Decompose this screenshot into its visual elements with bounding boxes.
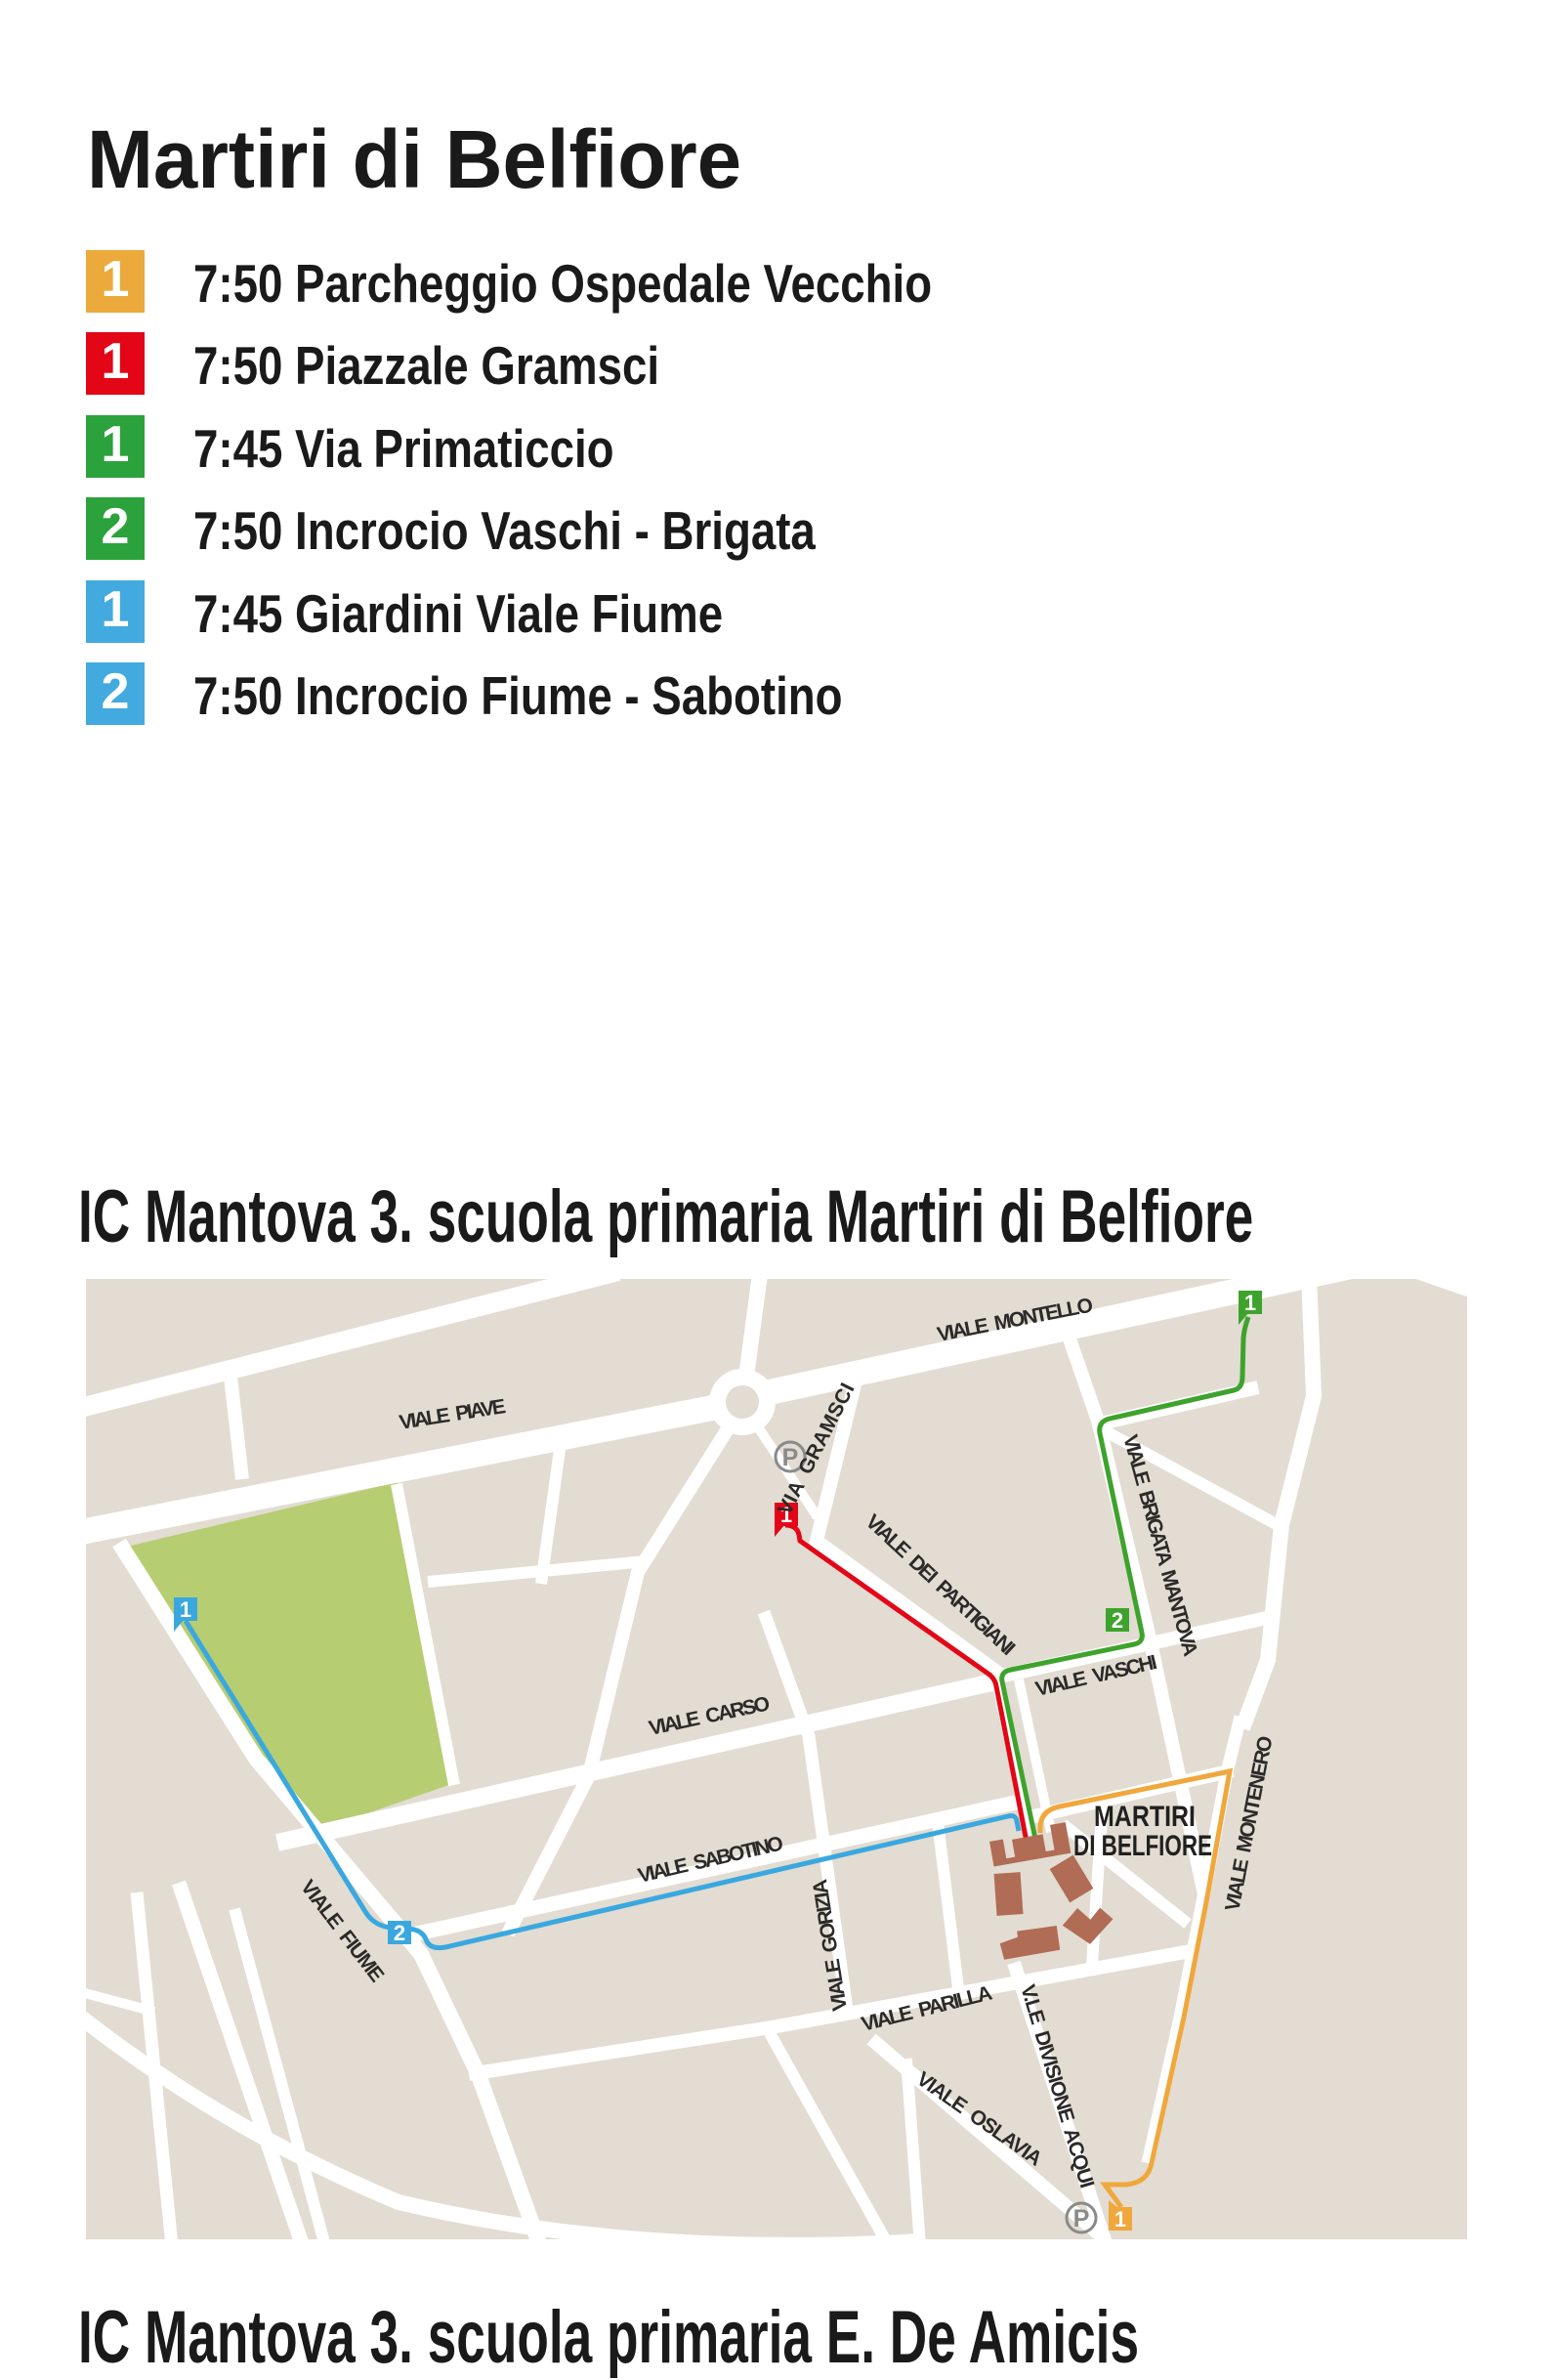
svg-text:2: 2 bbox=[1112, 1608, 1123, 1633]
svg-text:MARTIRI: MARTIRI bbox=[1094, 1801, 1196, 1833]
svg-text:2: 2 bbox=[394, 1921, 405, 1945]
svg-text:1: 1 bbox=[1244, 1291, 1256, 1315]
svg-text:DI BELFIORE: DI BELFIORE bbox=[1073, 1830, 1212, 1862]
svg-text:1: 1 bbox=[1114, 2207, 1126, 2231]
svg-text:1: 1 bbox=[180, 1597, 191, 1622]
svg-text:P: P bbox=[1073, 2205, 1090, 2232]
